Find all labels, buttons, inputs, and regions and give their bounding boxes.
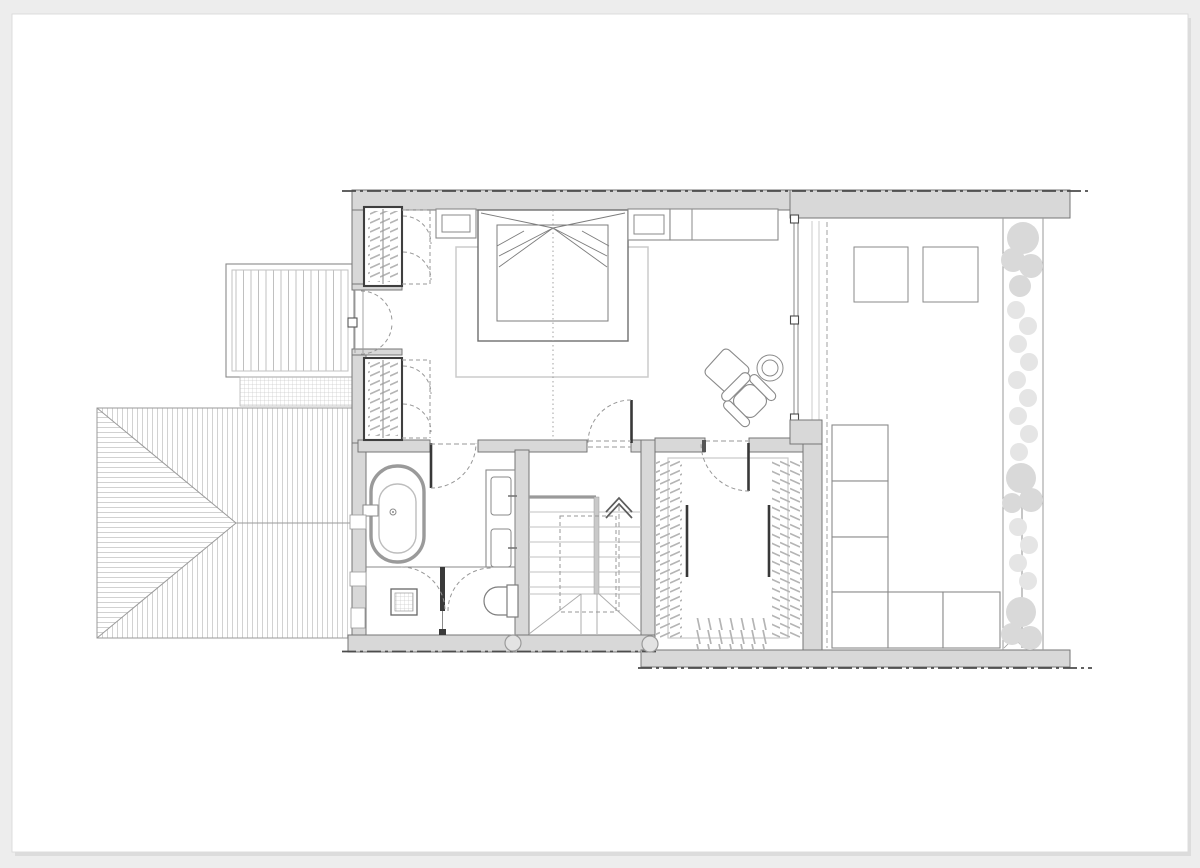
hanging-clothes-left	[656, 460, 682, 638]
wall-bedroom-south-1	[358, 440, 430, 452]
partition-stub	[440, 567, 445, 611]
wall-bedroom-south-2	[478, 440, 587, 452]
window-slit-2	[350, 572, 366, 586]
bathtub	[363, 466, 424, 562]
dresser	[670, 209, 778, 240]
hanging-clothes-right	[772, 460, 802, 638]
wall-top-right	[790, 190, 1070, 218]
floor-plan-canvas	[0, 0, 1200, 868]
toilet	[484, 585, 518, 617]
shower-drain	[391, 589, 417, 615]
nightstand-right	[628, 209, 670, 240]
mullion-top	[791, 215, 799, 223]
balcony-deck	[226, 264, 354, 406]
wall-corner-terrace	[790, 420, 822, 444]
mullion-middle	[791, 316, 799, 324]
deck-grating	[240, 377, 354, 406]
door-hinge-block	[348, 318, 357, 327]
tub-faucet	[363, 505, 378, 516]
wall-niche	[351, 608, 365, 628]
wall-closet-terrace	[803, 420, 822, 652]
floor-plan-drawing	[0, 0, 1200, 868]
wall-top-left	[352, 190, 790, 210]
wall-bottom-left	[348, 635, 655, 652]
window-slit-1	[350, 515, 366, 529]
hanging-clothes-bottom	[694, 618, 772, 650]
toilet-cistern	[507, 585, 518, 617]
wall-hall-closet	[641, 440, 655, 652]
wall-closet-north-1	[655, 438, 705, 452]
hipped-roof	[97, 408, 352, 638]
nightstand-left	[436, 209, 476, 238]
wall-left-bathroom	[352, 443, 366, 635]
wall-bottom-right	[641, 650, 1070, 667]
door-jamb-closet	[702, 440, 706, 452]
double-vanity	[486, 470, 517, 567]
downpipe-2	[642, 636, 658, 652]
stringer	[594, 497, 599, 594]
downpipe-1	[505, 635, 521, 651]
